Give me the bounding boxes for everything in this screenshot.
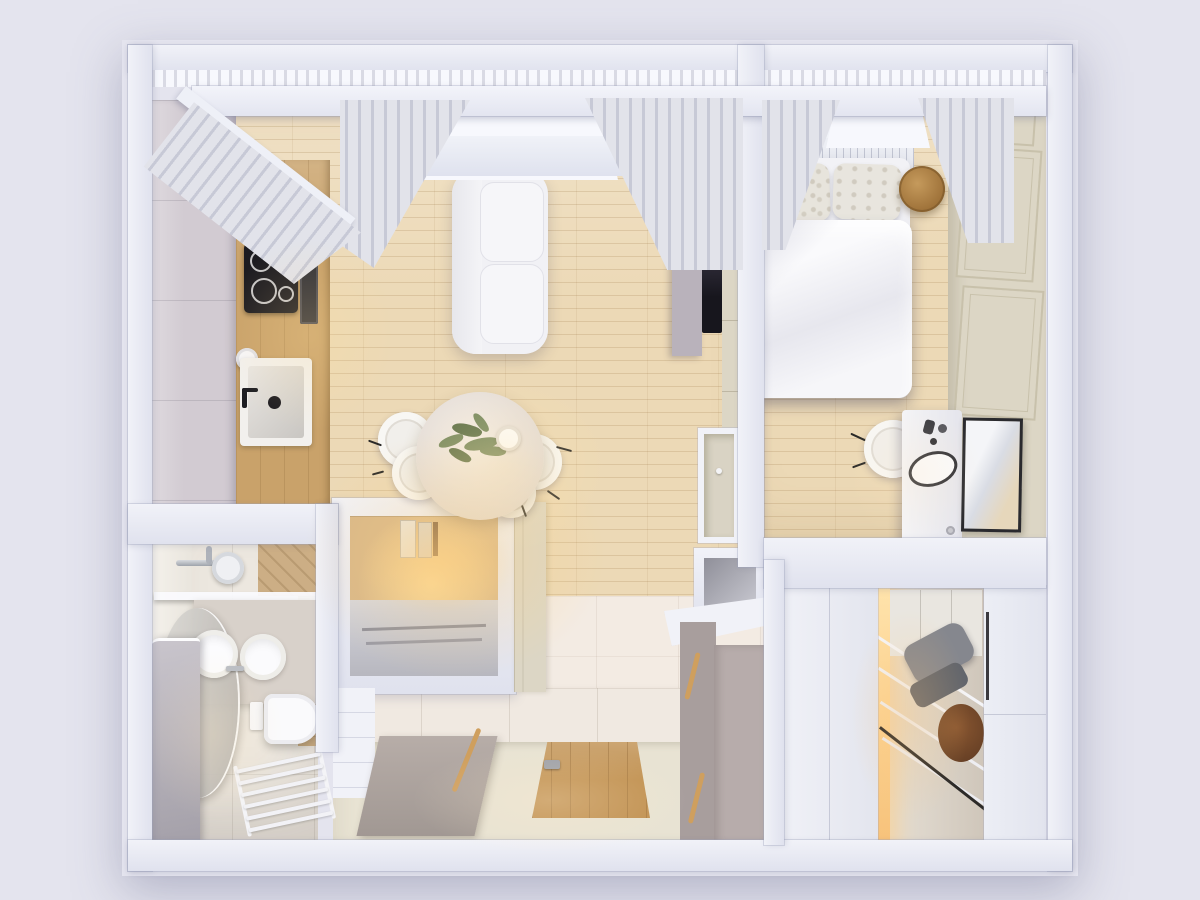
floor-plan-canvas: [0, 0, 1200, 900]
bathroom-wood-accent-top: [258, 540, 316, 596]
sink-drain: [268, 396, 281, 409]
wall-mirror: [961, 417, 1023, 532]
bathroom-door-open: [356, 736, 497, 836]
bathroom-top-wall: [128, 504, 338, 544]
oval-table-mirror: [904, 445, 962, 493]
sofa-cushion: [480, 264, 544, 344]
bedroom-closet-wall: [764, 538, 1046, 588]
desk-knob: [946, 526, 955, 535]
nook-cream-side-panel: [514, 502, 546, 692]
cosmetics: [938, 424, 947, 433]
nook-sliding-tray: [350, 600, 498, 676]
wall-moulding-panel: [954, 285, 1045, 420]
shower-glass-panel: [150, 638, 200, 848]
round-basin: [240, 634, 286, 680]
closet-sliding-door-left: [782, 586, 878, 844]
cosmetics: [922, 419, 935, 435]
cup-on-table: [496, 426, 521, 451]
binder: [400, 520, 416, 558]
round-bedside-table: [899, 166, 945, 212]
closet-sliding-door-right: [984, 586, 1046, 844]
shower-mixer-riser: [206, 546, 212, 564]
binder: [418, 522, 432, 558]
basin-faucet: [226, 666, 244, 671]
niche-hook: [716, 468, 722, 474]
shower-glass-screen: [154, 592, 316, 600]
round-wood-box: [938, 704, 984, 762]
kitchen-sink: [240, 358, 312, 446]
outer-wall-right: [1048, 45, 1072, 871]
divider-wall-niche: [698, 428, 740, 543]
vanity-desk: [902, 410, 962, 552]
outer-wall-top: [128, 45, 1072, 72]
bathroom-right-wall: [316, 504, 338, 752]
flush-plate: [250, 702, 263, 730]
entrance-door-lock: [544, 760, 560, 769]
cosmetics: [930, 438, 937, 445]
desk-nook: [332, 498, 516, 694]
hall-closet-wall: [764, 560, 784, 845]
hall-cabinet-front: [714, 645, 766, 845]
sofa: [452, 170, 548, 354]
nook-desk-top: [350, 516, 498, 600]
closet-led-strip: [878, 586, 890, 844]
closet-door-handle: [986, 612, 989, 700]
pillow: [832, 163, 902, 221]
window-gap-light: [152, 70, 1046, 87]
sofa-backrest: [452, 170, 482, 354]
binder: [433, 522, 438, 556]
wall-hung-toilet: [264, 694, 320, 744]
shower-shelf-disc: [212, 552, 244, 584]
entrance-door-open: [532, 742, 650, 818]
outer-wall-bottom: [128, 840, 1072, 871]
sofa-cushion: [480, 182, 544, 262]
closet-interior: [878, 586, 984, 844]
